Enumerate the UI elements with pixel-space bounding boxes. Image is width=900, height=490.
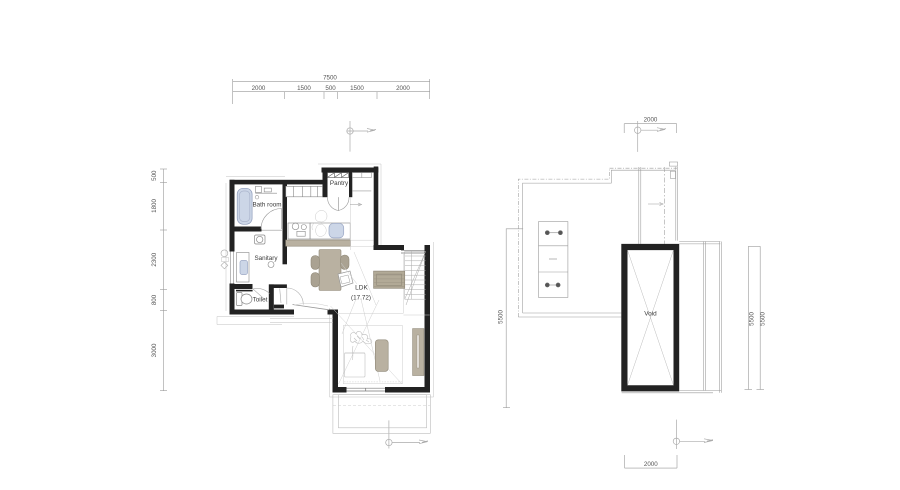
svg-text:1500: 1500 xyxy=(350,85,364,92)
svg-text:Sanitary: Sanitary xyxy=(254,255,278,262)
svg-text:7500: 7500 xyxy=(323,75,337,82)
svg-text:500: 500 xyxy=(325,85,336,92)
svg-text:5500: 5500 xyxy=(749,312,756,326)
svg-text:Bath room: Bath room xyxy=(252,202,281,209)
svg-text:1500: 1500 xyxy=(297,85,311,92)
svg-text:800: 800 xyxy=(151,294,158,305)
svg-text:1800: 1800 xyxy=(151,199,158,213)
svg-text:Pantry: Pantry xyxy=(330,180,349,187)
svg-text:3000: 3000 xyxy=(151,343,158,357)
svg-text:5500: 5500 xyxy=(498,310,505,324)
svg-text:LDK: LDK xyxy=(355,285,368,292)
svg-text:2000: 2000 xyxy=(644,117,658,124)
svg-text:2000: 2000 xyxy=(396,85,410,92)
svg-text:500: 500 xyxy=(151,170,158,181)
svg-text:2000: 2000 xyxy=(252,85,266,92)
svg-text:2300: 2300 xyxy=(151,252,158,266)
svg-text:(17.72): (17.72) xyxy=(351,294,371,301)
svg-text:2000: 2000 xyxy=(644,461,658,468)
svg-text:5500: 5500 xyxy=(759,312,766,326)
svg-text:Void: Void xyxy=(644,311,657,318)
